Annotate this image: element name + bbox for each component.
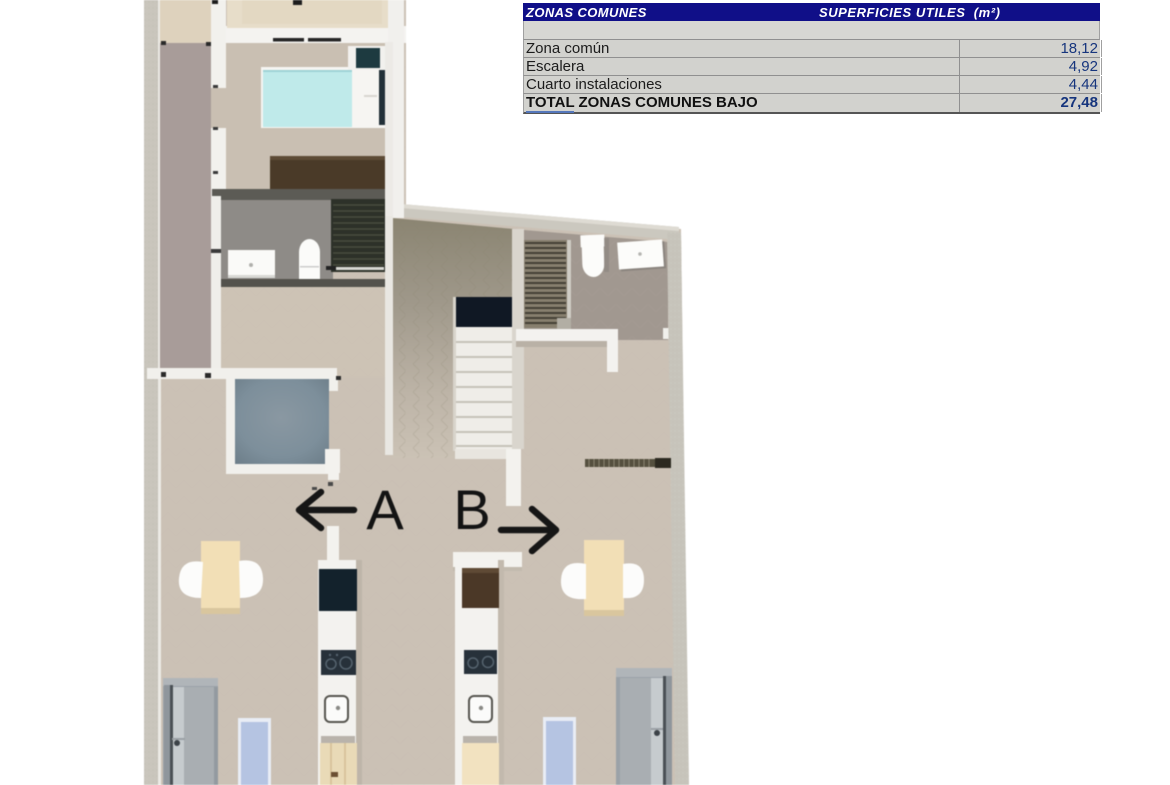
svg-text:A: A [366,478,404,541]
svg-text:B: B [453,478,490,541]
